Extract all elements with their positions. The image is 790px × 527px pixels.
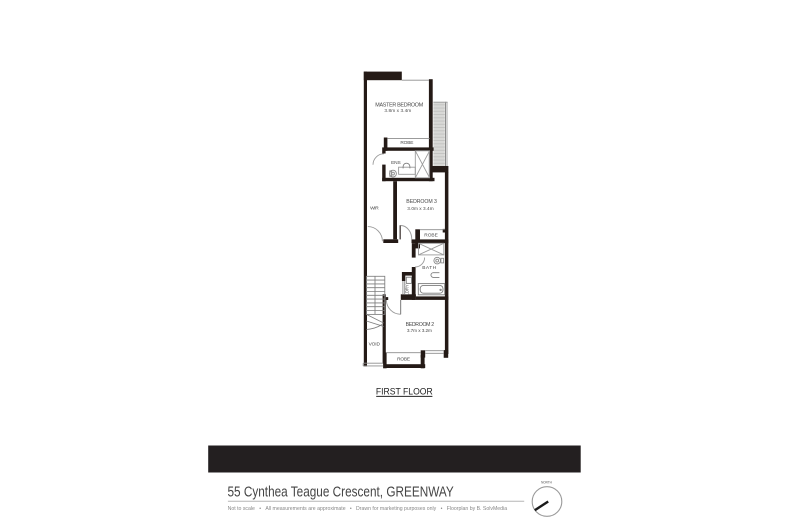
svg-text:3.7m x 3.2m: 3.7m x 3.2m [407,328,432,333]
svg-text:LDRY: LDRY [405,284,410,295]
svg-text:WIR: WIR [370,206,379,212]
svg-text:55 Cynthea Teague Crescent, GR: 55 Cynthea Teague Crescent, GREENWAY [228,483,454,500]
svg-text:ENS: ENS [391,160,401,166]
svg-text:ROBE: ROBE [424,233,438,239]
svg-text:3.0m x 3.4m: 3.0m x 3.4m [407,206,433,211]
svg-text:ROBE: ROBE [400,140,413,146]
svg-text:Not to scale • All measure: Not to scale • All measurements are appr… [228,506,508,512]
svg-text:3.8m x 3.4m: 3.8m x 3.4m [384,108,411,113]
svg-text:VOID: VOID [369,341,381,347]
svg-text:NORTH: NORTH [541,481,552,485]
svg-text:BATH: BATH [422,265,437,271]
svg-text:BEDROOM 3: BEDROOM 3 [406,199,437,205]
svg-text:ROBE: ROBE [397,357,410,363]
svg-text:FIRST FLOOR: FIRST FLOOR [376,387,433,397]
